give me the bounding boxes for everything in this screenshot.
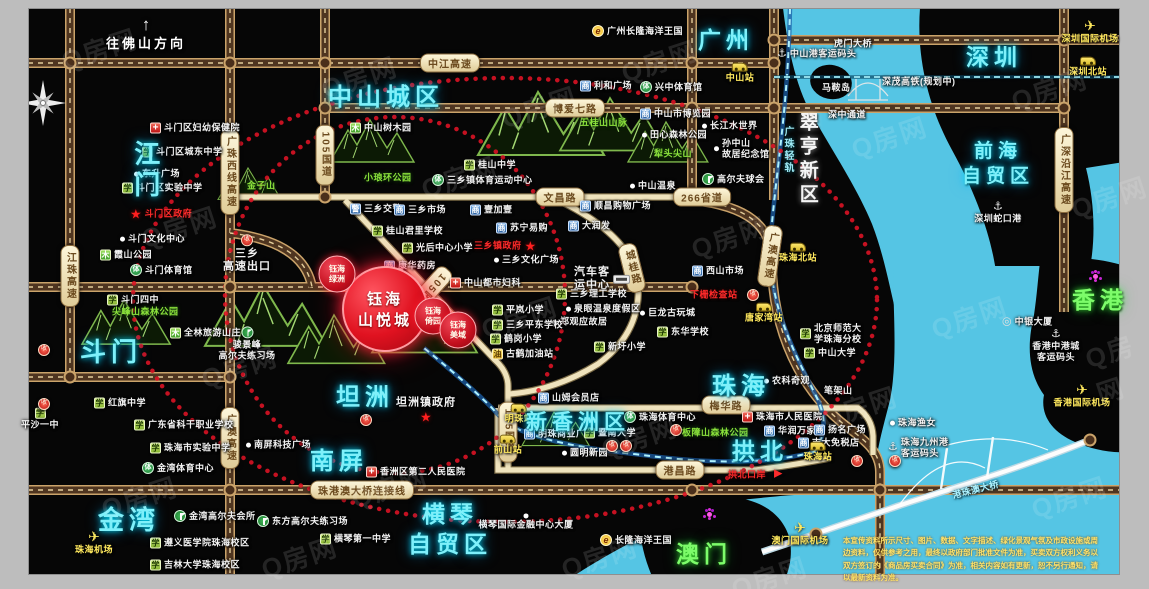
up-arrow-icon: ↑: [106, 16, 186, 33]
map-frame: [28, 8, 1120, 575]
map-stage: 中江高速博爱七路文昌路266省道105国道105国道105国道江珠高速广珠西线高…: [0, 0, 1149, 589]
disclaimer: 本宣传资料所示尺寸、图片、数据、文字描述、绿化景观气氛及市政设施或周边资料，仅供…: [843, 535, 1103, 585]
direction-label: 往佛山方向: [106, 33, 186, 52]
direction-sign: ↑ 往佛山方向: [106, 16, 186, 52]
